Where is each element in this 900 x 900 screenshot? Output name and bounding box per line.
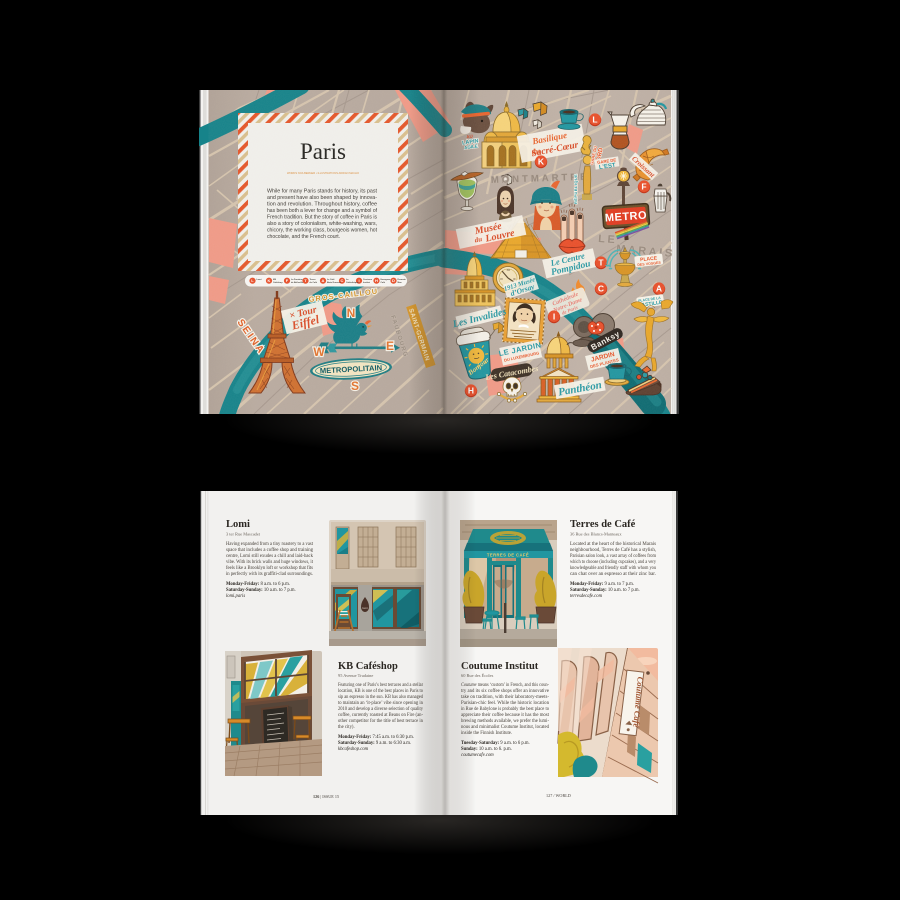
svg-text:Saturday-Sunday: 9 a.m. to 6:3: Saturday-Sunday: 9 a.m. to 6:30 a.m. bbox=[338, 741, 411, 746]
svg-text:centre, Lomi still exudes a ch: centre, Lomi still exudes a chill and la… bbox=[226, 554, 314, 559]
svg-text:other competitor for the title: other competitor for the title of best t… bbox=[338, 719, 424, 724]
svg-text:Monday-Friday: 7:45 a.m. to 6:: Monday-Friday: 7:45 a.m. to 6:30 p.m. bbox=[338, 735, 414, 740]
svg-text:Located at the heart of the hi: Located at the heart of the historical M… bbox=[570, 542, 656, 547]
svg-text:Monday-Friday: 9 a.m. to 7 p.m: Monday-Friday: 9 a.m. to 7 p.m. bbox=[570, 582, 634, 587]
svg-text:3 ter Rue Mascadet: 3 ter Rue Mascadet bbox=[226, 532, 261, 537]
svg-text:Featuring one of Paris’s best: Featuring one of Paris’s best terraces a… bbox=[338, 683, 423, 688]
svg-text:can chat over an espresso at t: can chat over an espresso at their zinc … bbox=[570, 572, 656, 577]
svg-text:Having expanded from a tiny ro: Having expanded from a tiny roastery to … bbox=[226, 542, 314, 547]
svg-text:126 | ISSUE 15: 126 | ISSUE 15 bbox=[313, 794, 339, 799]
svg-text:space that includes a coffee s: space that includes a coffee shop and tr… bbox=[226, 548, 314, 553]
svg-text:to maintain an ‘it-place’ vibe: to maintain an ‘it-place’ vibe since ope… bbox=[338, 700, 424, 706]
svg-text:KB Caféshop: KB Caféshop bbox=[338, 661, 398, 672]
svg-text:Lomi: Lomi bbox=[226, 519, 250, 530]
svg-text:lomi.paris: lomi.paris bbox=[226, 594, 245, 599]
svg-text:in perfectly with its graffiti: in perfectly with its graffiti-clad surr… bbox=[226, 572, 313, 577]
svg-text:coffee, currently roasted at B: coffee, currently roasted at Beans on Fi… bbox=[338, 713, 423, 718]
svg-text:neighbourhood, Terres de Café: neighbourhood, Terres de Café has a styl… bbox=[570, 548, 656, 553]
svg-text:Terres de Café: Terres de Café bbox=[570, 519, 636, 530]
svg-text:knowledgeable and friendly sta: knowledgeable and friendly staff with wh… bbox=[570, 566, 657, 571]
svg-text:vibe. With its brick walls and: vibe. With its brick walls and huge wind… bbox=[226, 560, 314, 565]
svg-text:Monday-Friday: 8 a.m. to 6 p.m: Monday-Friday: 8 a.m. to 6 p.m. bbox=[226, 582, 290, 587]
svg-text:Saturday-Sunday: 10 a.m. to 7: Saturday-Sunday: 10 a.m. to 7 p.m. bbox=[570, 588, 640, 593]
svg-text:36 Rue des Blancs-Manteaux: 36 Rue des Blancs-Manteaux bbox=[570, 532, 622, 537]
svg-text:feels like a Brooklyn loft or: feels like a Brooklyn loft or workshop t… bbox=[226, 566, 313, 571]
svg-text:lomi: lomi bbox=[362, 606, 368, 610]
svg-text:2010 and develop a diverse sel: 2010 and develop a diverse selection of … bbox=[338, 707, 424, 712]
svg-text:Saturday-Sunday: 10 a.m. to 7: Saturday-Sunday: 10 a.m. to 7 p.m. bbox=[226, 588, 296, 593]
svg-text:sip an espresso in the sun. KB: sip an espresso in the sun. KB has also … bbox=[338, 695, 424, 700]
svg-text:terresdecafe.com: terresdecafe.com bbox=[570, 594, 603, 599]
svg-text:Parisian salon look, a vast ar: Parisian salon look, a vast array of cof… bbox=[570, 554, 656, 559]
svg-text:the city).: the city). bbox=[338, 725, 355, 730]
svg-text:location, KB is one of the bes: location, KB is one of the best places i… bbox=[338, 689, 424, 694]
svg-text:127 / WORLD: 127 / WORLD bbox=[546, 793, 571, 798]
svg-text:which to choose (including cup: which to choose (including cupcakes), an… bbox=[570, 560, 657, 565]
svg-text:TERRES DE CAFÉ: TERRES DE CAFÉ bbox=[487, 552, 529, 557]
svg-text:95 Avenue Trudaine: 95 Avenue Trudaine bbox=[338, 673, 373, 678]
svg-text:kbcafeshop.com: kbcafeshop.com bbox=[338, 747, 369, 752]
